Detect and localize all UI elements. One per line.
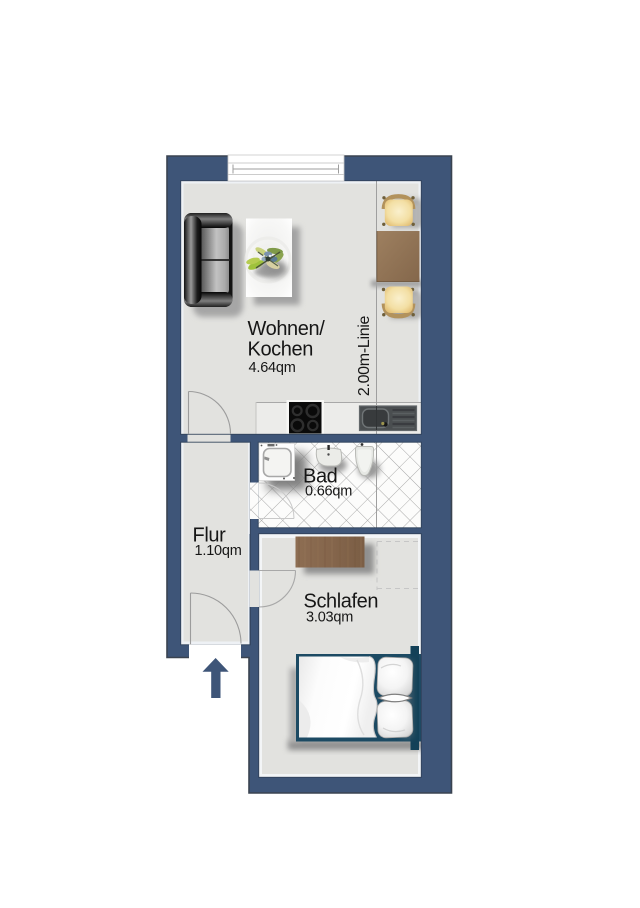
svg-text:3.03qm: 3.03qm: [306, 610, 353, 626]
svg-text:0.66qm: 0.66qm: [305, 484, 352, 500]
svg-text:2.00m-Linie: 2.00m-Linie: [356, 315, 373, 396]
svg-text:1.10qm: 1.10qm: [195, 543, 242, 559]
svg-text:Kochen: Kochen: [248, 339, 313, 361]
svg-text:Wohnen/: Wohnen/: [248, 318, 326, 340]
svg-text:4.64qm: 4.64qm: [249, 360, 296, 376]
